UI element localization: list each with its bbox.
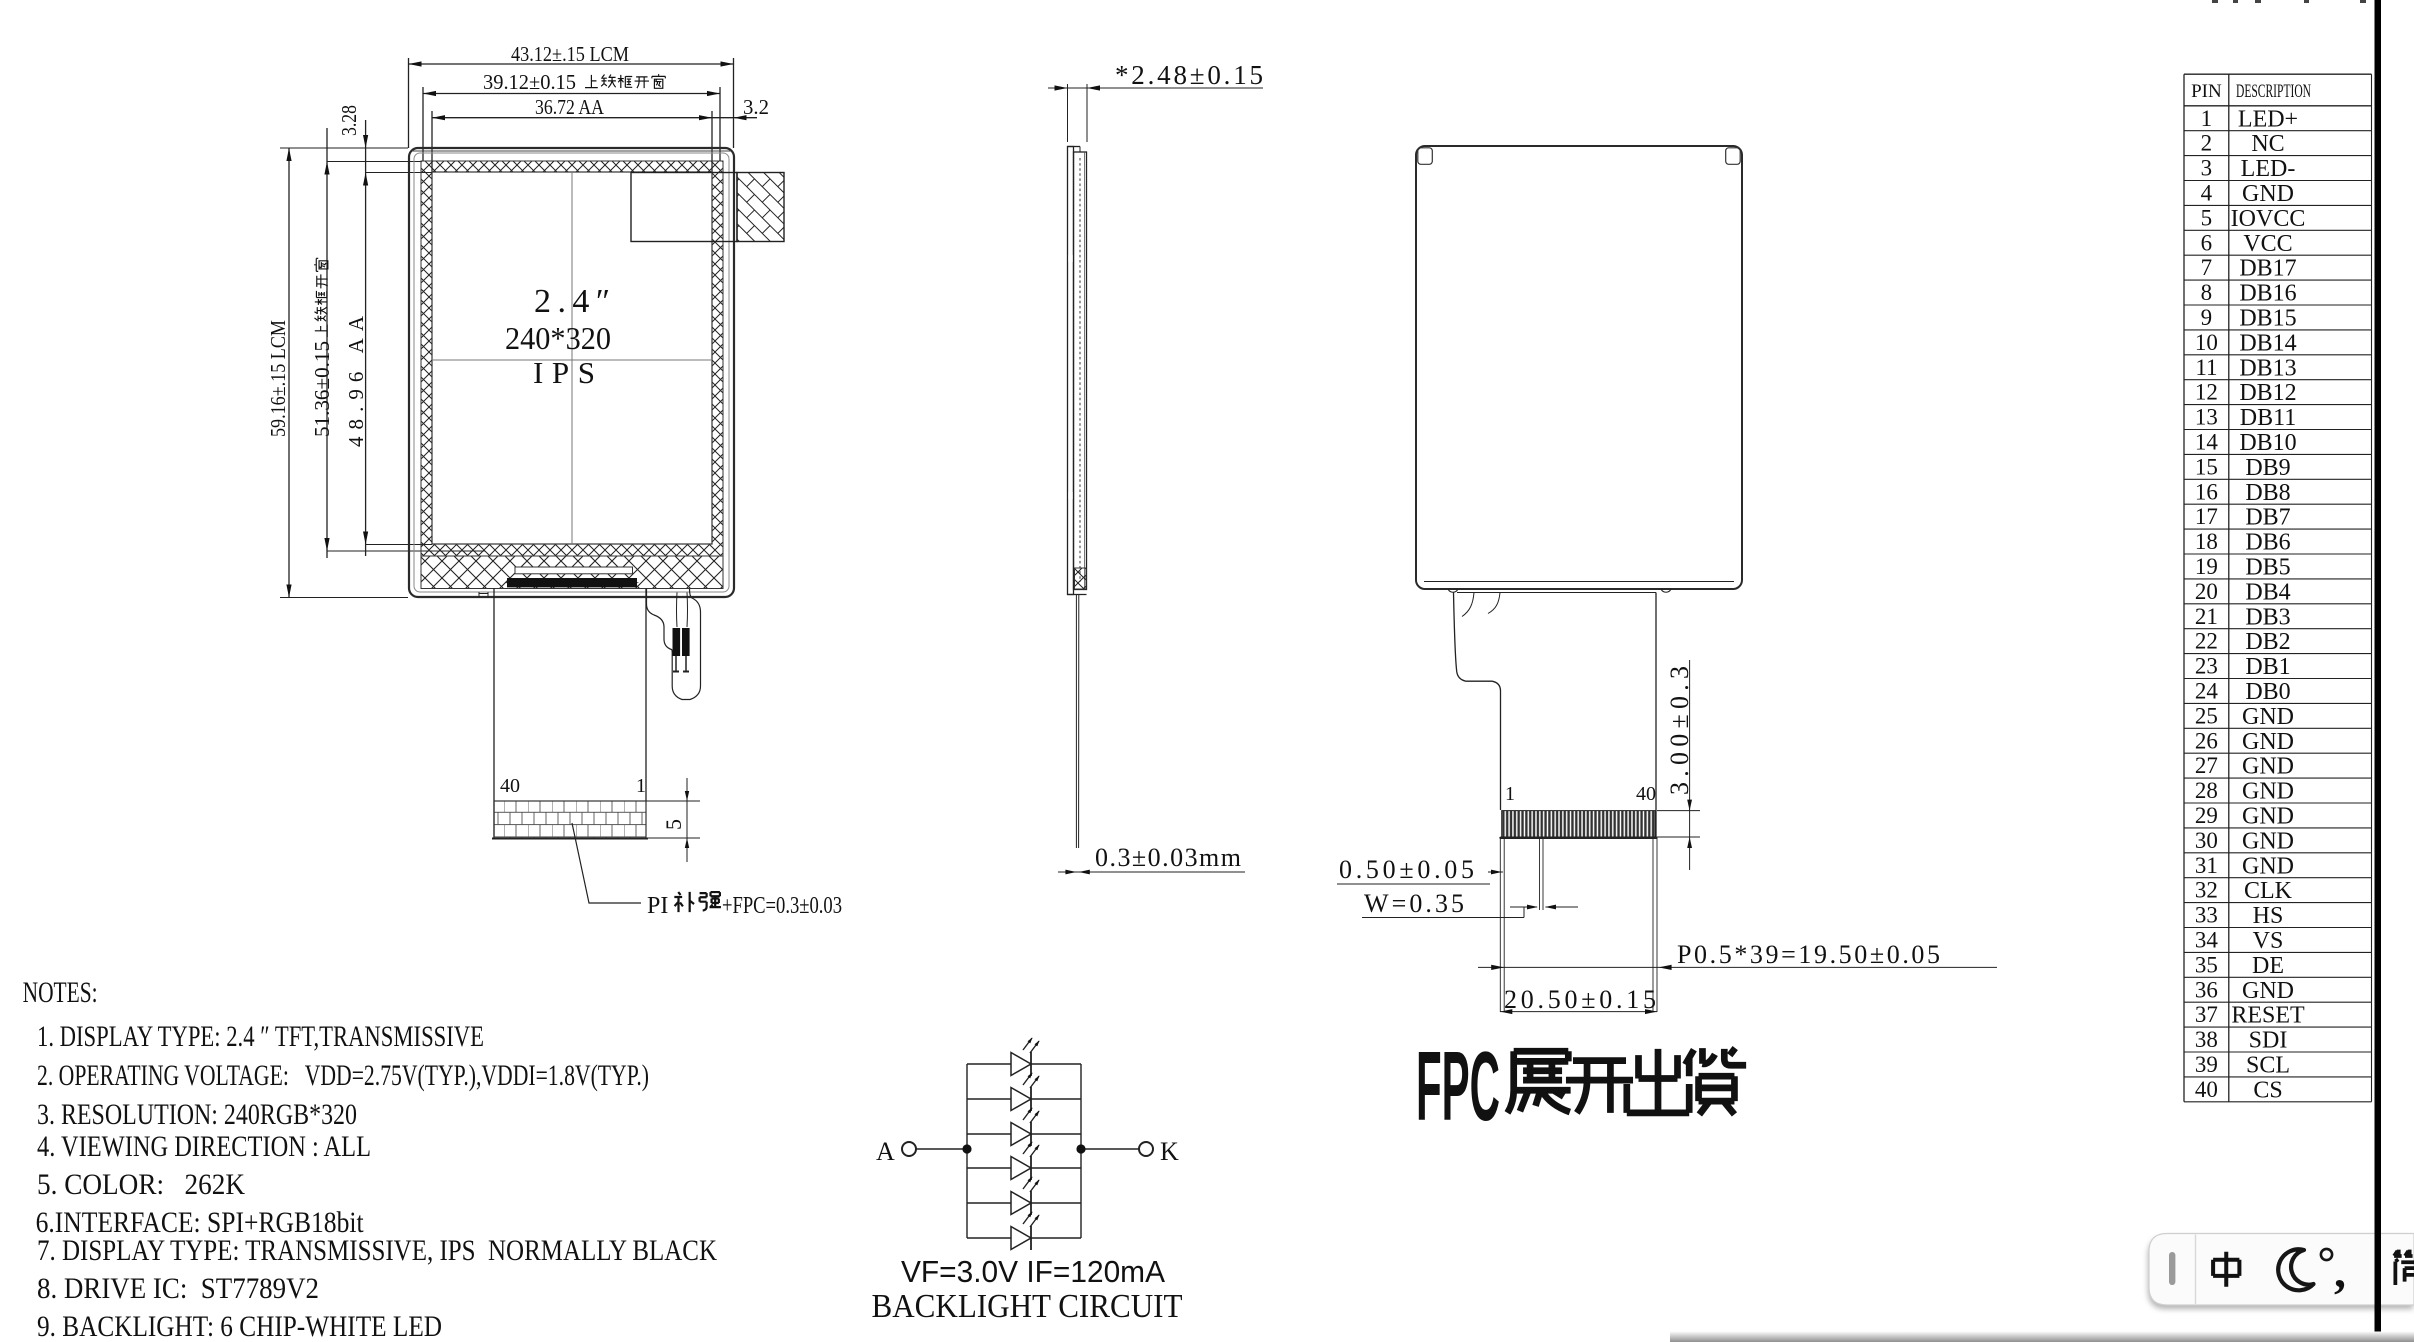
svg-text:7: 7	[2201, 255, 2213, 280]
svg-text:0.3±0.03mm: 0.3±0.03mm	[1095, 843, 1241, 872]
svg-text:GND: GND	[2242, 729, 2294, 755]
svg-text:K: K	[1160, 1137, 1179, 1166]
svg-text:NOTES:: NOTES:	[23, 976, 98, 1009]
svg-text:VCC: VCC	[2243, 231, 2292, 257]
svg-text:DB0: DB0	[2245, 679, 2290, 705]
svg-text:LED-: LED-	[2241, 156, 2296, 182]
svg-text:20: 20	[2195, 579, 2218, 604]
svg-text:DESCRIPTION: DESCRIPTION	[2236, 81, 2311, 102]
svg-text:SCL: SCL	[2246, 1053, 2290, 1079]
svg-text:14: 14	[2195, 430, 2219, 455]
svg-text:A: A	[876, 1137, 895, 1166]
svg-text:VS: VS	[2253, 928, 2284, 954]
svg-text:NC: NC	[2251, 131, 2284, 157]
svg-text:DB1: DB1	[2245, 654, 2290, 680]
svg-text:+FPC=0.3±0.03: +FPC=0.3±0.03	[722, 893, 842, 919]
svg-text:19: 19	[2195, 554, 2218, 579]
svg-text:31: 31	[2195, 853, 2218, 878]
svg-text:5: 5	[2201, 205, 2213, 230]
svg-text:DB6: DB6	[2245, 530, 2290, 556]
svg-text:25: 25	[2195, 703, 2218, 728]
svg-text:*2.48±0.15: *2.48±0.15	[1115, 60, 1263, 90]
svg-text:HS: HS	[2253, 903, 2284, 929]
svg-text:CLK: CLK	[2244, 878, 2293, 904]
svg-text:40: 40	[500, 775, 520, 797]
svg-text:24: 24	[2195, 679, 2219, 704]
svg-text:27: 27	[2195, 753, 2218, 778]
svg-text:GND: GND	[2242, 779, 2294, 805]
svg-text:6: 6	[2201, 230, 2213, 255]
svg-text:0.50±0.05: 0.50±0.05	[1339, 855, 1474, 884]
svg-text:26: 26	[2195, 728, 2218, 753]
svg-text:1: 1	[1505, 783, 1515, 805]
svg-text:DB7: DB7	[2245, 505, 2290, 531]
svg-text:DB2: DB2	[2245, 629, 2290, 655]
svg-text:SDI: SDI	[2249, 1028, 2288, 1054]
svg-text:FPC: FPC	[1416, 1031, 1500, 1141]
svg-text:5. COLOR: 262K: 5. COLOR: 262K	[37, 1168, 245, 1201]
svg-text:PIN: PIN	[2191, 81, 2222, 102]
svg-text:28: 28	[2195, 778, 2218, 803]
svg-text:38: 38	[2195, 1027, 2218, 1052]
svg-text:3. RESOLUTION: 240RGB*320: 3. RESOLUTION: 240RGB*320	[37, 1098, 357, 1131]
svg-text:240*320: 240*320	[505, 320, 611, 356]
svg-text:32: 32	[2195, 878, 2218, 903]
svg-text:1: 1	[2201, 106, 2213, 131]
svg-text:23: 23	[2195, 654, 2218, 679]
svg-text:3.28: 3.28	[337, 105, 361, 136]
svg-text:VF=3.0V IF=120mA: VF=3.0V IF=120mA	[901, 1254, 1165, 1289]
svg-text:39: 39	[2195, 1052, 2218, 1077]
svg-text:IPS: IPS	[533, 355, 595, 390]
svg-text:34: 34	[2195, 928, 2219, 953]
svg-text:51.36±0.15: 51.36±0.15	[310, 341, 334, 437]
svg-text:DB8: DB8	[2245, 480, 2290, 506]
svg-text:8. DRIVE IC: ST7789V2: 8. DRIVE IC: ST7789V2	[37, 1272, 319, 1305]
svg-text:DB5: DB5	[2245, 555, 2290, 581]
svg-text:DB9: DB9	[2245, 455, 2290, 481]
svg-text:1. DISPLAY TYPE: 2.4 ″ TFT,TRA: 1. DISPLAY TYPE: 2.4 ″ TFT,TRANSMISSIVE	[37, 1020, 484, 1053]
svg-text:PI: PI	[647, 893, 668, 919]
svg-text:3.2: 3.2	[743, 95, 769, 119]
svg-text:2.4″: 2.4″	[534, 283, 610, 320]
svg-text:GND: GND	[2242, 754, 2294, 780]
svg-text:13: 13	[2195, 405, 2218, 430]
svg-text:59.16±.15 LCM: 59.16±.15 LCM	[266, 320, 290, 437]
svg-text:11: 11	[2195, 355, 2217, 380]
svg-text:10: 10	[2195, 330, 2218, 355]
svg-text:9. BACKLIGHT: 6 CHIP-WHITE LED: 9. BACKLIGHT: 6 CHIP-WHITE LED	[37, 1310, 442, 1342]
svg-text:DB14: DB14	[2239, 330, 2296, 356]
svg-text:30: 30	[2195, 828, 2218, 853]
svg-text:GND: GND	[2242, 704, 2294, 730]
svg-text:16: 16	[2195, 479, 2218, 504]
svg-text:21: 21	[2195, 604, 2218, 629]
svg-text:DB3: DB3	[2245, 604, 2290, 630]
svg-text:8: 8	[2201, 280, 2213, 305]
svg-text:36.72 AA: 36.72 AA	[535, 95, 605, 119]
svg-text:33: 33	[2195, 903, 2218, 928]
svg-text:DB11: DB11	[2240, 405, 2296, 431]
svg-text:DB13: DB13	[2239, 355, 2296, 381]
svg-text:9: 9	[2201, 305, 2213, 330]
svg-text:43.12±.15 LCM: 43.12±.15 LCM	[511, 42, 629, 66]
svg-text:DB16: DB16	[2239, 281, 2296, 307]
svg-text:DB17: DB17	[2239, 256, 2296, 282]
svg-text:1: 1	[636, 775, 646, 797]
svg-text:GND: GND	[2242, 828, 2294, 854]
svg-text:GND: GND	[2242, 804, 2294, 830]
svg-text:IOVCC: IOVCC	[2231, 206, 2306, 232]
svg-text:12: 12	[2195, 380, 2218, 405]
svg-text:7. DISPLAY TYPE: TRANSMISSIVE,: 7. DISPLAY TYPE: TRANSMISSIVE, IPS NORMA…	[37, 1234, 717, 1267]
svg-text:2: 2	[2201, 131, 2213, 156]
svg-text:39.12±0.15: 39.12±0.15	[483, 70, 576, 94]
svg-text:22: 22	[2195, 629, 2218, 654]
svg-text:DE: DE	[2252, 953, 2284, 979]
svg-text:36: 36	[2195, 977, 2218, 1002]
svg-text:40: 40	[1636, 783, 1656, 805]
svg-text:2. OPERATING VOLTAGE: VDD=2.: 2. OPERATING VOLTAGE: VDD=2.75V(TYP.),VD…	[37, 1059, 649, 1092]
svg-text:GND: GND	[2242, 181, 2294, 207]
svg-text:GND: GND	[2242, 853, 2294, 879]
svg-text:15: 15	[2195, 454, 2218, 479]
svg-text:29: 29	[2195, 803, 2218, 828]
svg-text:DB15: DB15	[2239, 306, 2296, 332]
svg-text:37: 37	[2195, 1002, 2218, 1027]
svg-text:3: 3	[2201, 156, 2213, 181]
svg-text:CS: CS	[2253, 1077, 2282, 1103]
svg-text:5: 5	[661, 819, 686, 830]
svg-text:DB10: DB10	[2239, 430, 2296, 456]
svg-text:DB12: DB12	[2239, 380, 2296, 406]
svg-text:BACKLIGHT CIRCUIT: BACKLIGHT CIRCUIT	[872, 1288, 1183, 1325]
svg-text:DB4: DB4	[2245, 579, 2290, 605]
svg-text:17: 17	[2195, 504, 2218, 529]
svg-text:4. VIEWING DIRECTION : ALL: 4. VIEWING DIRECTION : ALL	[37, 1130, 371, 1163]
svg-text:35: 35	[2195, 952, 2218, 977]
svg-text:18: 18	[2195, 529, 2218, 554]
svg-text:LED+: LED+	[2238, 106, 2298, 132]
svg-text:GND: GND	[2242, 978, 2294, 1004]
svg-text:4: 4	[2201, 181, 2213, 206]
svg-text:40: 40	[2195, 1077, 2218, 1102]
svg-text:RESET: RESET	[2231, 1003, 2305, 1029]
svg-text:,: ,	[2334, 1245, 2346, 1298]
